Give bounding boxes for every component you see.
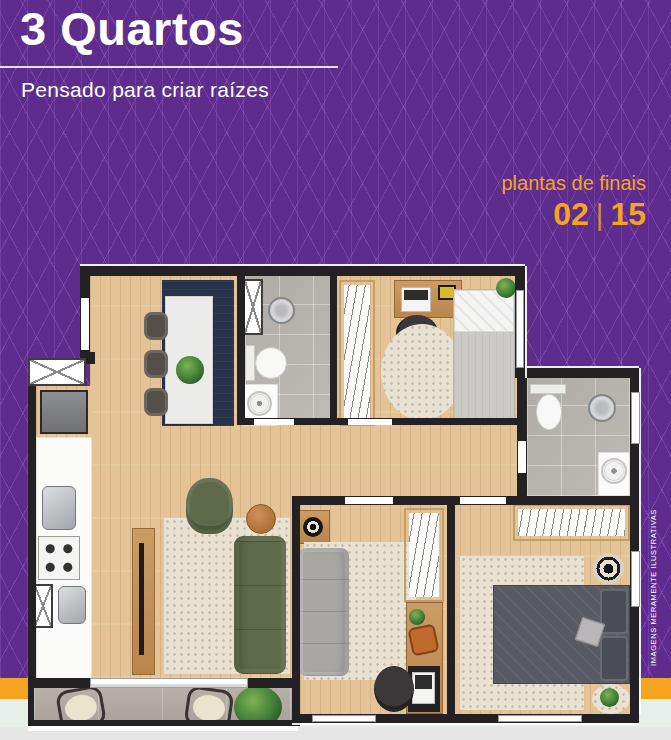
bathroom2-window	[631, 392, 640, 444]
laundry-tank	[58, 586, 86, 624]
wall	[28, 386, 36, 682]
master-plant	[600, 688, 619, 707]
title-underline	[0, 66, 338, 68]
bathroom1-door	[254, 419, 294, 425]
bathroom2-basin	[588, 394, 616, 422]
shower-box	[243, 279, 263, 335]
kitchen-cabinet	[33, 584, 53, 628]
unit-number-first: 02	[553, 196, 589, 232]
bathroom1-basin	[268, 297, 295, 324]
bed-pillow	[600, 636, 628, 681]
master-window-side	[631, 551, 640, 607]
bedroom1-door	[348, 419, 392, 425]
wall	[447, 505, 455, 716]
wall	[80, 266, 525, 276]
bedroom2-office-chair	[374, 666, 414, 712]
bedroom1-laptop	[401, 287, 431, 312]
bathroom1-sink	[247, 391, 272, 416]
stove	[38, 536, 80, 580]
bedroom2-door	[345, 497, 393, 504]
bathroom2-toilet-tank	[530, 384, 566, 394]
flyer-page: 3 Quartos Pensado para criar raízes plan…	[0, 0, 671, 740]
tv-sideboard	[132, 528, 155, 675]
bedroom1-wardrobe	[339, 280, 375, 426]
master-door	[460, 497, 506, 504]
bedroom1-plant	[496, 278, 516, 298]
plan-info-label: plantas de finais	[501, 172, 646, 195]
wall	[330, 276, 337, 425]
dining-chair	[144, 350, 168, 378]
bedroom2-wardrobe	[404, 508, 444, 602]
wall	[292, 496, 300, 678]
bedroom2-laptop	[412, 672, 435, 704]
tv-screen	[139, 543, 144, 655]
unit-number-second: 15	[610, 196, 646, 232]
wall	[248, 678, 292, 688]
dining-chair	[144, 388, 168, 416]
kitchen-window	[28, 358, 86, 386]
disclaimer-vertical-text: IMAGENS MERAMENTE ILUSTRATIVAS	[649, 495, 664, 680]
balcony-wall	[28, 688, 34, 722]
bedroom2-plant	[409, 609, 425, 625]
bedroom2-window	[312, 715, 376, 722]
green-armchair	[186, 478, 233, 534]
unit-separator: |	[596, 199, 604, 231]
plan-unit-numbers: 02|15	[553, 196, 646, 233]
record-player	[303, 517, 323, 537]
side-table	[246, 504, 276, 534]
balcony-sliding-door	[90, 678, 248, 688]
bedroom1-bed	[453, 289, 515, 421]
bathroom1-toilet-bowl	[255, 347, 287, 379]
entry-door	[81, 298, 89, 350]
master-bed	[493, 585, 630, 684]
balcony-sill	[28, 726, 298, 731]
dining-chair	[144, 312, 168, 340]
bedroom2-orange-chair	[407, 623, 439, 656]
master-nightstand	[593, 553, 624, 584]
wall	[517, 368, 639, 378]
wall	[237, 276, 245, 425]
hall-console	[296, 510, 330, 544]
bathroom1-toilet-tank	[245, 345, 255, 381]
wall	[517, 378, 527, 496]
green-sofa	[234, 536, 286, 674]
bedroom2-gray-sofa	[299, 548, 349, 676]
bathroom2-toilet-bowl	[536, 394, 562, 430]
bedroom1-window	[516, 290, 524, 368]
page-title: 3 Quartos	[20, 2, 244, 56]
bathroom2-door	[518, 441, 526, 473]
master-wardrobe	[513, 504, 630, 541]
table-plant	[176, 356, 204, 384]
bedroom1-rug	[381, 324, 463, 420]
bathroom2-sink	[601, 458, 627, 484]
page-subtitle: Pensado para criar raízes	[21, 78, 269, 102]
bed-pillow	[600, 589, 628, 634]
master-window-bottom	[498, 715, 582, 722]
wall	[28, 678, 90, 688]
fridge	[40, 390, 88, 434]
kitchen-sink	[42, 486, 76, 530]
